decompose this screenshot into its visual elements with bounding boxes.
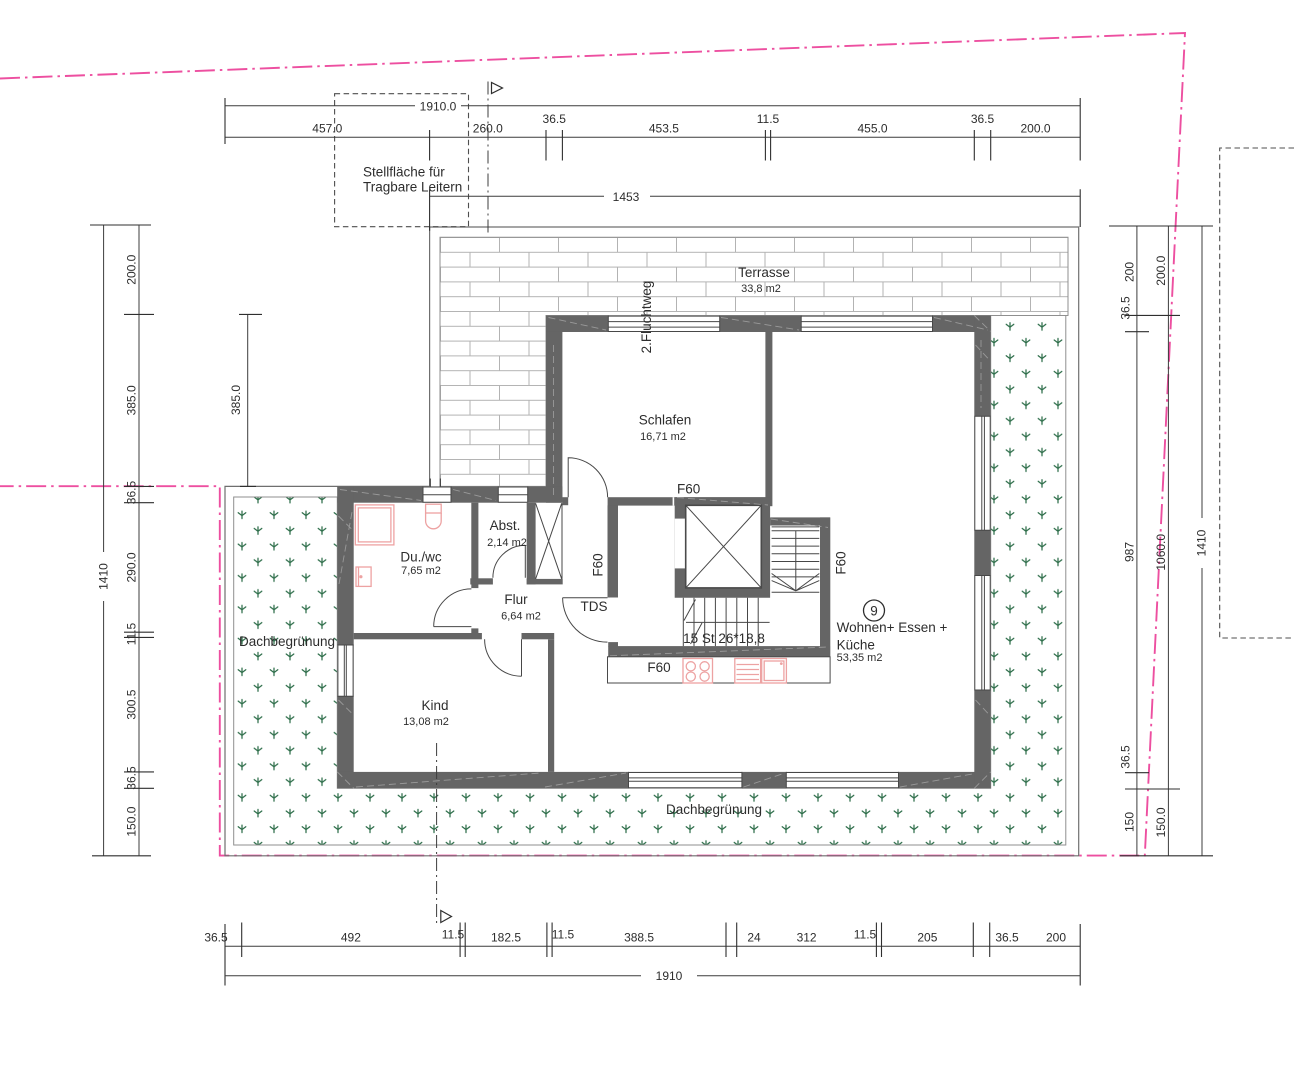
svg-text:Schlafen: Schlafen [639, 413, 692, 428]
svg-text:388.5: 388.5 [624, 931, 654, 945]
svg-text:1410: 1410 [1195, 529, 1209, 556]
svg-text:36.5: 36.5 [543, 112, 567, 126]
svg-text:1910: 1910 [656, 969, 683, 983]
svg-text:200.0: 200.0 [1154, 255, 1168, 285]
svg-text:11.5: 11.5 [854, 928, 877, 942]
svg-text:290.0: 290.0 [125, 552, 139, 582]
svg-text:Flur: Flur [504, 592, 528, 607]
svg-text:53,35 m2: 53,35 m2 [837, 652, 883, 664]
svg-text:385.0: 385.0 [229, 385, 243, 415]
svg-text:Du./wc: Du./wc [400, 550, 442, 565]
svg-text:200.0: 200.0 [1020, 122, 1050, 136]
svg-text:15 St 26*18,8: 15 St 26*18,8 [683, 631, 765, 646]
svg-text:200.0: 200.0 [125, 254, 139, 284]
svg-text:455.0: 455.0 [857, 122, 887, 136]
svg-text:457.0: 457.0 [312, 122, 342, 136]
svg-text:260.0: 260.0 [473, 122, 503, 136]
svg-text:1910.0: 1910.0 [420, 100, 457, 114]
svg-text:Stellfläche für: Stellfläche für [363, 165, 445, 180]
svg-text:1060.0: 1060.0 [1154, 534, 1168, 571]
svg-text:7,65 m2: 7,65 m2 [401, 565, 441, 577]
svg-text:453.5: 453.5 [649, 122, 679, 136]
svg-text:200: 200 [1046, 931, 1066, 945]
svg-text:Kind: Kind [421, 698, 448, 713]
svg-text:Wohnen+ Essen +: Wohnen+ Essen + [837, 620, 948, 635]
svg-text:36.5: 36.5 [125, 480, 139, 504]
svg-text:Küche: Küche [837, 638, 875, 653]
svg-text:Terrasse: Terrasse [738, 265, 790, 280]
svg-text:16,71 m2: 16,71 m2 [640, 431, 686, 443]
svg-text:11.5: 11.5 [757, 112, 780, 126]
svg-text:312: 312 [797, 931, 817, 945]
svg-text:9: 9 [870, 604, 878, 619]
svg-text:1453: 1453 [613, 190, 640, 204]
svg-text:2,14 m2: 2,14 m2 [487, 537, 527, 549]
svg-text:36.5: 36.5 [1118, 296, 1132, 320]
svg-text:200: 200 [1122, 262, 1136, 282]
svg-text:F60: F60 [647, 660, 670, 675]
svg-text:492: 492 [341, 931, 361, 945]
svg-text:300.5: 300.5 [125, 689, 139, 719]
svg-text:150.0: 150.0 [125, 806, 139, 836]
svg-text:36.5: 36.5 [204, 931, 228, 945]
svg-text:150.0: 150.0 [1154, 807, 1168, 837]
svg-text:36.5: 36.5 [125, 766, 139, 790]
svg-text:Dachbegrünung: Dachbegrünung [666, 802, 762, 817]
svg-text:F60: F60 [591, 553, 606, 576]
svg-text:6,64 m2: 6,64 m2 [501, 611, 541, 623]
svg-text:182.5: 182.5 [491, 931, 521, 945]
svg-text:11.5: 11.5 [125, 622, 139, 645]
svg-text:Abst.: Abst. [490, 518, 521, 533]
svg-text:385.0: 385.0 [125, 385, 139, 415]
svg-text:36.5: 36.5 [971, 112, 995, 126]
svg-text:205: 205 [917, 931, 937, 945]
svg-text:36.5: 36.5 [995, 931, 1019, 945]
svg-text:11.5: 11.5 [442, 928, 465, 942]
svg-text:1410: 1410 [96, 563, 110, 590]
svg-text:F60: F60 [677, 482, 700, 497]
svg-text:13,08 m2: 13,08 m2 [403, 716, 449, 728]
svg-text:F60: F60 [834, 551, 849, 574]
svg-text:Tragbare Leitern: Tragbare Leitern [363, 180, 462, 195]
svg-text:36.5: 36.5 [1118, 745, 1132, 769]
svg-text:2.Fluchtweg: 2.Fluchtweg [639, 281, 654, 354]
svg-text:11.5: 11.5 [552, 928, 575, 942]
svg-text:24: 24 [747, 931, 761, 945]
svg-text:TDS: TDS [581, 599, 608, 614]
svg-text:150: 150 [1122, 812, 1136, 832]
svg-text:987: 987 [1122, 542, 1136, 562]
svg-text:Dachbegrünung: Dachbegrünung [239, 634, 335, 649]
svg-text:33,8 m2: 33,8 m2 [741, 283, 781, 295]
